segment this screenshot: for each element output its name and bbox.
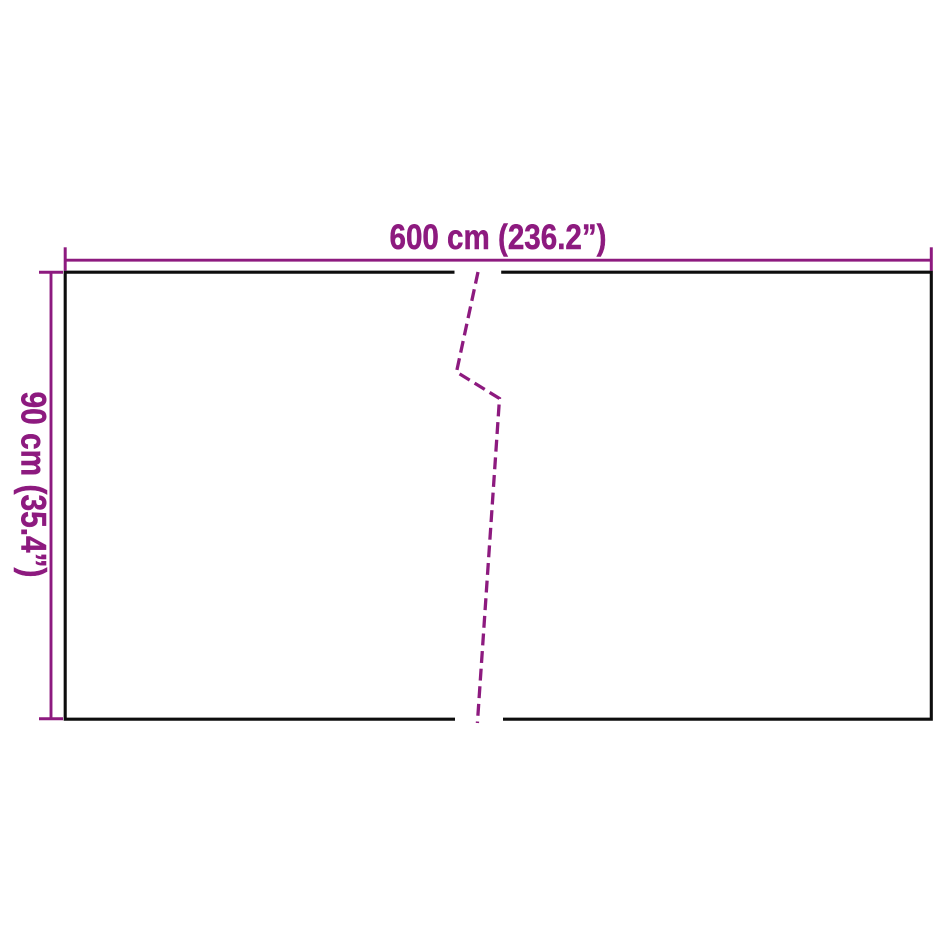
svg-text:90 cm (35.4”): 90 cm (35.4”) [14,392,53,578]
svg-text:600 cm (236.2”): 600 cm (236.2”) [390,218,607,257]
